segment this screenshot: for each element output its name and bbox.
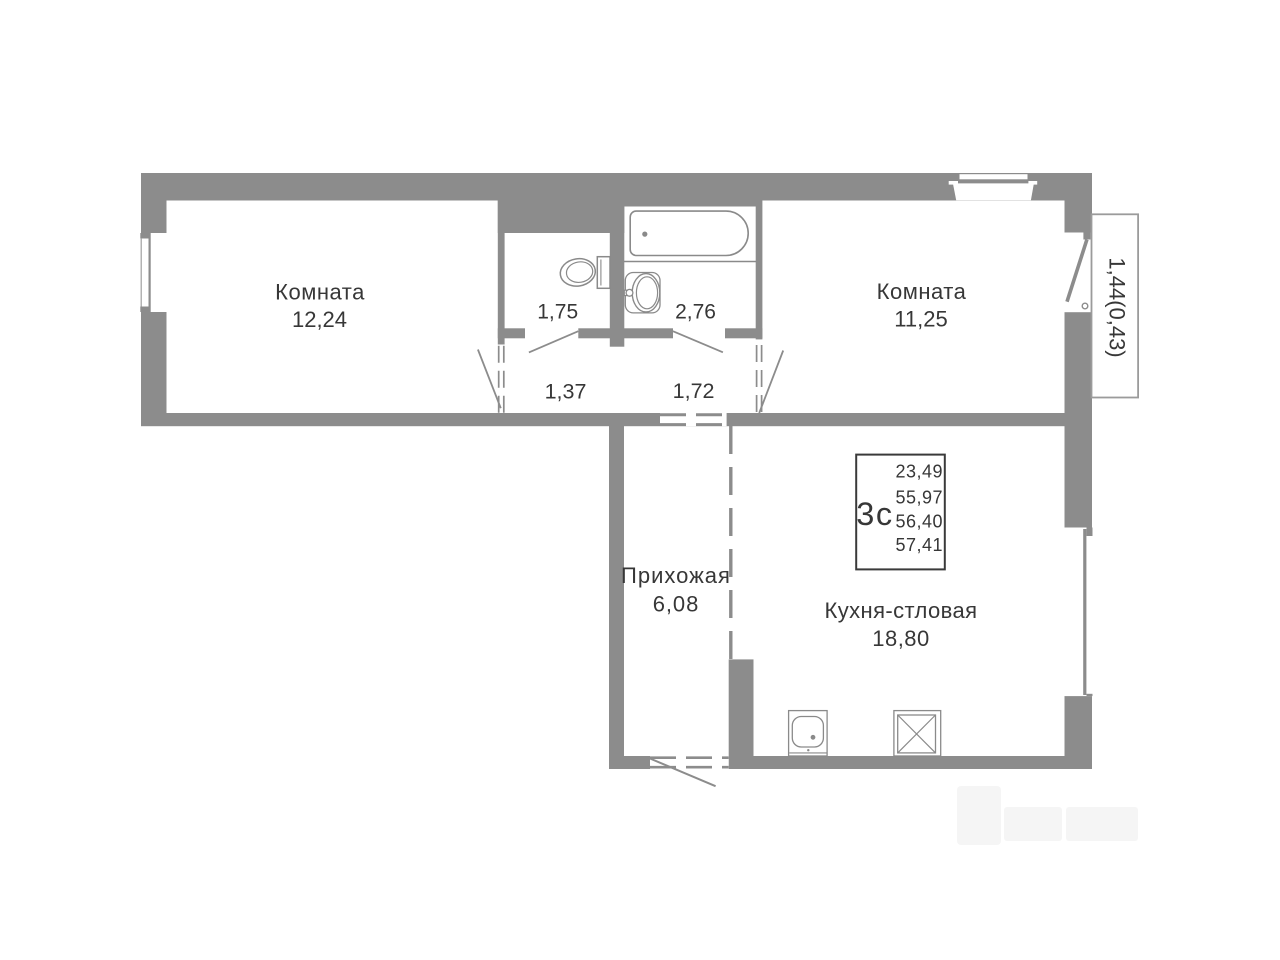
- svg-text:Кухня-стловая: Кухня-стловая: [825, 598, 978, 623]
- svg-text:2,76: 2,76: [675, 301, 716, 324]
- svg-text:1,72: 1,72: [673, 379, 715, 403]
- svg-text:56,40: 56,40: [895, 512, 943, 532]
- svg-text:Прихожая: Прихожая: [621, 563, 731, 588]
- svg-text:11,25: 11,25: [894, 307, 947, 332]
- svg-text:6,08: 6,08: [653, 592, 699, 617]
- svg-text:23,49: 23,49: [895, 462, 943, 482]
- svg-text:1,75: 1,75: [537, 301, 578, 324]
- svg-text:12,24: 12,24: [292, 307, 347, 332]
- svg-text:1,37: 1,37: [545, 380, 587, 404]
- svg-text:57,41: 57,41: [895, 535, 943, 555]
- svg-text:Комната: Комната: [275, 280, 365, 305]
- svg-text:55,97: 55,97: [895, 488, 943, 508]
- svg-text:18,80: 18,80: [872, 626, 930, 651]
- svg-text:3с: 3с: [856, 496, 894, 532]
- svg-text:1,44(0,43): 1,44(0,43): [1105, 257, 1130, 357]
- svg-text:Комната: Комната: [877, 279, 967, 304]
